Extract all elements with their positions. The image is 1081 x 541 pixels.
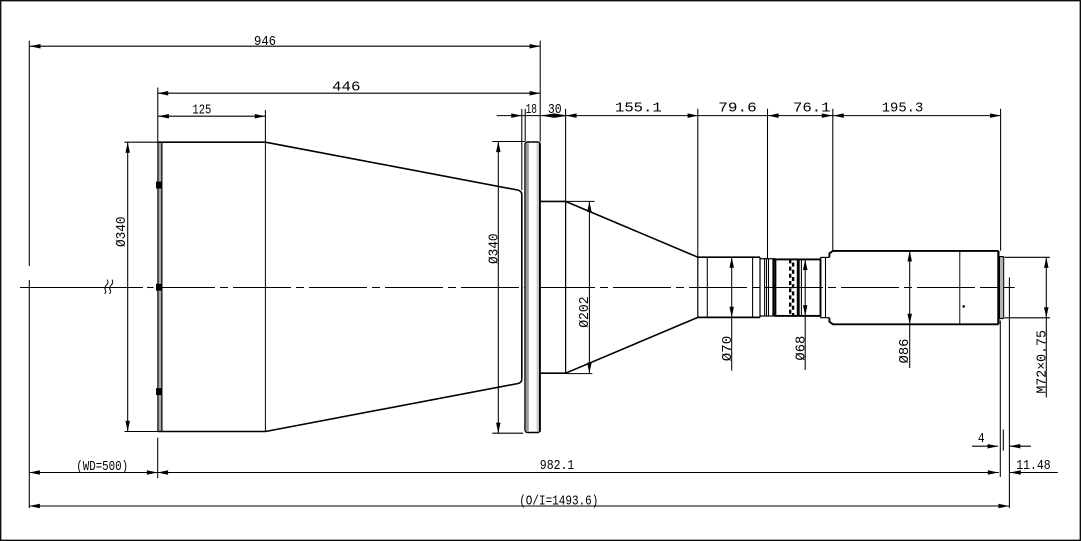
svg-text:125: 125 xyxy=(192,103,211,119)
svg-text:Ø70: Ø70 xyxy=(720,336,736,361)
svg-text:79.6: 79.6 xyxy=(718,101,756,117)
svg-text:155.1: 155.1 xyxy=(615,101,662,117)
svg-text:Ø340: Ø340 xyxy=(486,234,502,265)
svg-text:446: 446 xyxy=(332,80,361,96)
svg-text:946: 946 xyxy=(254,34,276,50)
svg-text:76.1: 76.1 xyxy=(793,101,831,117)
svg-text:(O/I=1493.6): (O/I=1493.6) xyxy=(519,493,598,509)
svg-text:Ø86: Ø86 xyxy=(897,339,913,364)
svg-text:4: 4 xyxy=(978,431,985,447)
svg-text:(WD=500): (WD=500) xyxy=(76,459,128,475)
svg-text:18: 18 xyxy=(526,102,537,118)
svg-text:195.3: 195.3 xyxy=(882,101,924,117)
svg-text:M72×0.75: M72×0.75 xyxy=(1035,330,1051,394)
svg-text:Ø340: Ø340 xyxy=(114,217,130,248)
svg-text:Ø68: Ø68 xyxy=(793,336,809,361)
svg-text:11.48: 11.48 xyxy=(1016,458,1050,474)
svg-text:30: 30 xyxy=(548,102,562,118)
svg-text:982.1: 982.1 xyxy=(540,458,575,474)
svg-text:Ø202: Ø202 xyxy=(577,296,593,328)
